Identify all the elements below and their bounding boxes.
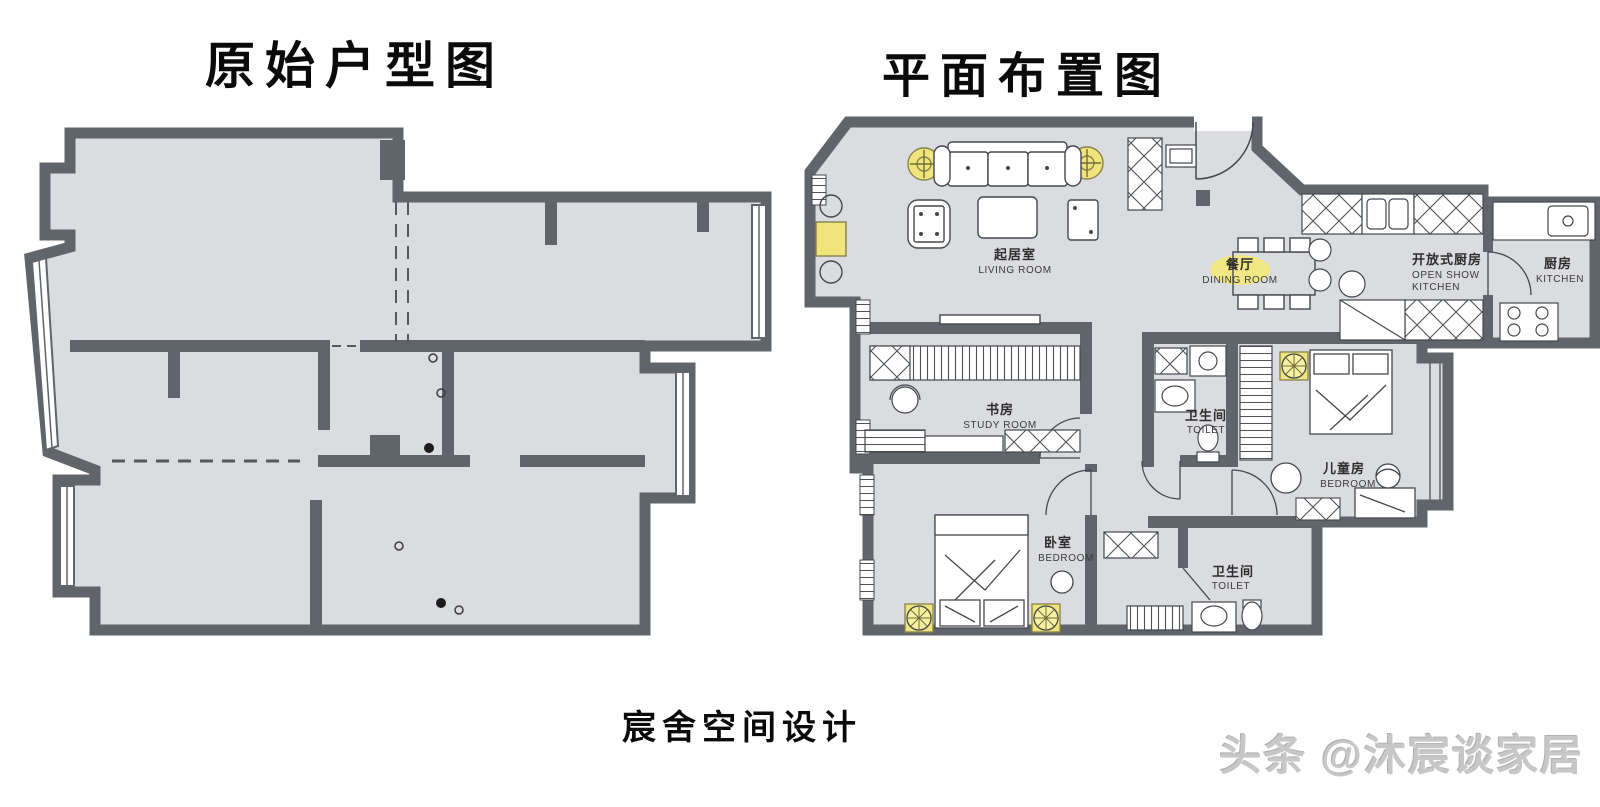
coffee-table: [978, 197, 1037, 238]
left-outline: [30, 133, 766, 630]
kids-desk: [1355, 488, 1415, 518]
label-kitchen-en: KITCHEN: [1536, 274, 1584, 285]
kids-wardrobe: [1240, 346, 1272, 460]
label-kids-zh: 儿童房: [1322, 461, 1365, 476]
bedroom-fan-right: [1032, 604, 1060, 632]
label-open-kitchen-zh: 开放式厨房: [1412, 252, 1482, 267]
label-kitchen-zh: 厨房: [1544, 256, 1572, 271]
label-bedroom-zh: 卧室: [1044, 535, 1072, 550]
label-bedroom-en: BEDROOM: [1038, 553, 1094, 564]
floorplan-comparison-sheet: 原始户型图 平面布置图: [0, 0, 1600, 807]
stove: [1500, 303, 1558, 341]
label-living-en: LIVING ROOM: [978, 265, 1051, 276]
kids-bed: [1310, 350, 1392, 434]
side-table: [1068, 200, 1098, 240]
tv-console: [940, 315, 1040, 324]
label-study-en: STUDY ROOM: [963, 420, 1037, 431]
bedroom-chair: [1051, 571, 1073, 593]
studio-name: 宸舍空间设计: [612, 700, 872, 749]
label-toilet-main-zh: 卫生间: [1185, 408, 1227, 423]
watermark-text: 头条 @沐宸谈家居: [1219, 722, 1584, 783]
original-floorplan: [0, 100, 800, 660]
furnished-floorplan: 起居室 LIVING ROOM 餐厅 DINING ROOM 开放式厨房 OPE…: [795, 95, 1600, 655]
label-kids-en: BEDROOM: [1320, 479, 1376, 490]
kids-desk-chair: [1376, 464, 1400, 488]
bedroom-fan-left: [905, 604, 933, 632]
label-toilet-second-zh: 卫生间: [1212, 564, 1254, 579]
label-toilet-main-en: TOILET: [1187, 425, 1225, 436]
label-open-kitchen-en1: OPEN SHOW: [1412, 270, 1480, 281]
kids-cabinet: [1296, 498, 1340, 520]
label-open-kitchen-en2: KITCHEN: [1412, 282, 1460, 293]
armchair: [908, 200, 950, 248]
label-dining-zh: 餐厅: [1225, 257, 1254, 272]
label-toilet-second-en: TOILET: [1212, 581, 1250, 592]
label-living-zh: 起居室: [993, 247, 1036, 262]
sofa: [934, 142, 1081, 186]
kids-stool: [1271, 463, 1301, 493]
bedroom-bed: [935, 515, 1028, 628]
label-study-zh: 书房: [986, 402, 1014, 417]
label-dining-en: DINING ROOM: [1202, 275, 1278, 286]
left-plan-title: 原始户型图: [205, 26, 505, 98]
